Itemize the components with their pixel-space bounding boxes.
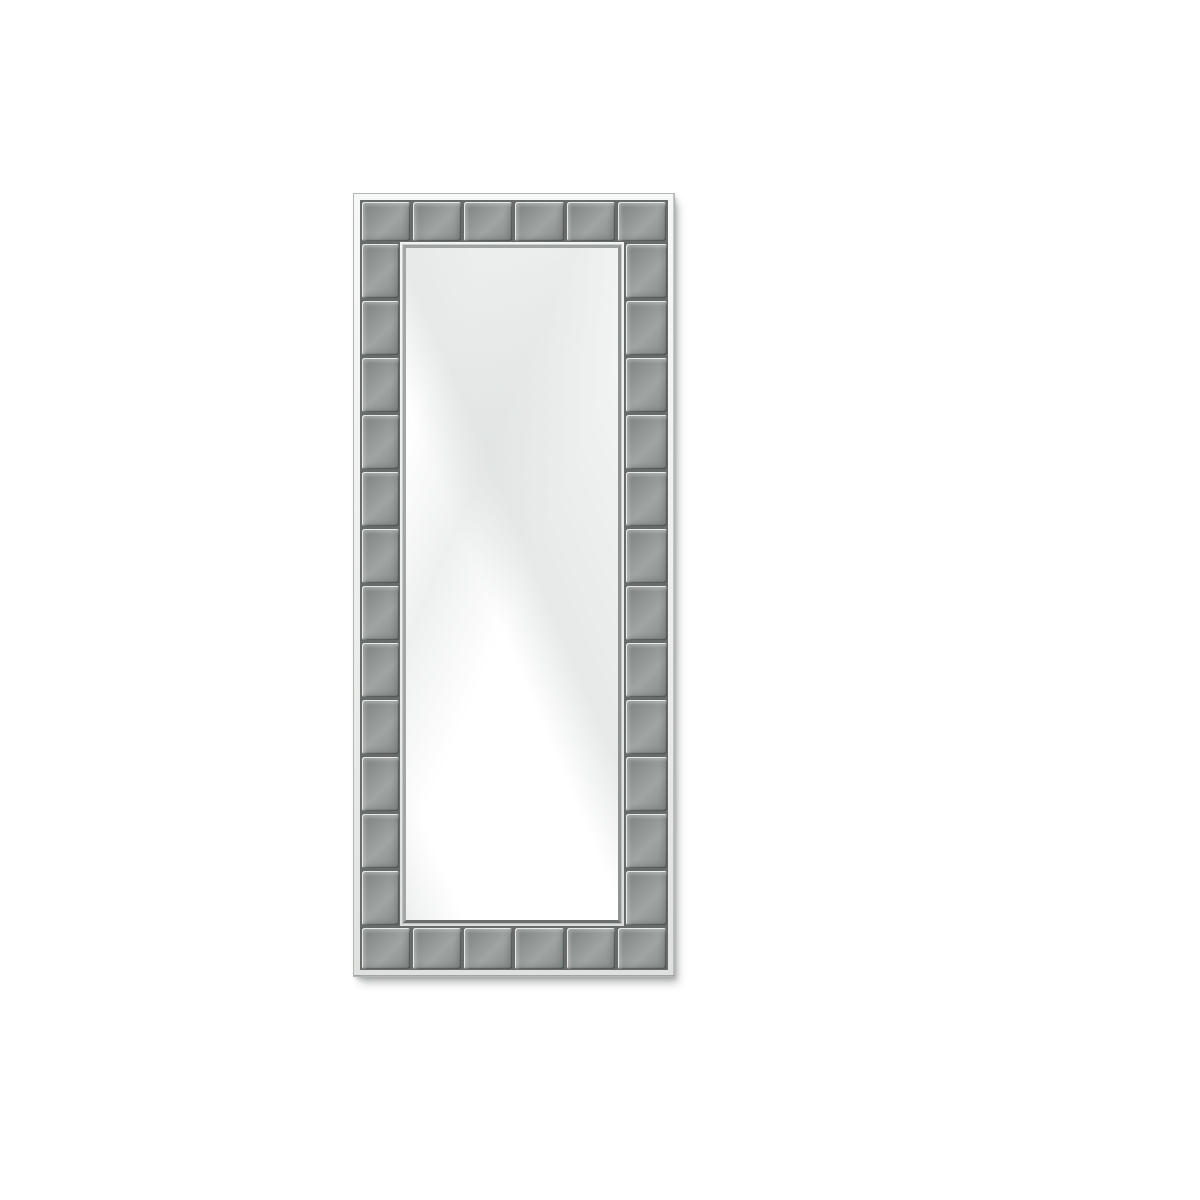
frame-tile [567, 202, 615, 241]
frame-tile [626, 643, 667, 697]
frame-tile [626, 301, 667, 355]
frame-tile [362, 472, 399, 526]
frame-tile [362, 301, 399, 355]
frame-tile [362, 586, 399, 640]
frame-top-strip [360, 200, 668, 242]
frame-bottom-strip [360, 926, 668, 970]
frame-tile [626, 757, 667, 811]
mirror-glass-bevel [403, 245, 621, 923]
frame-tile [567, 928, 615, 969]
frame-tile [362, 814, 399, 868]
mirror-glass [406, 248, 618, 920]
frame-tile [362, 700, 399, 754]
frame-tile [362, 757, 399, 811]
wall-mirror [353, 193, 675, 977]
frame-tile [362, 415, 399, 469]
frame-tile [413, 202, 461, 241]
frame-tile [362, 643, 399, 697]
frame-left-strip [360, 242, 400, 926]
frame-tile [515, 202, 563, 241]
frame-tile [362, 202, 410, 241]
frame-tile [362, 871, 399, 925]
frame-tile [626, 871, 667, 925]
frame-tile [515, 928, 563, 969]
frame-tile [626, 814, 667, 868]
frame-tile [464, 202, 512, 241]
frame-tile [626, 586, 667, 640]
glass-reflection [406, 248, 618, 920]
frame-tile [362, 244, 399, 298]
frame-tile [362, 529, 399, 583]
product-photo-canvas [0, 0, 1200, 1200]
frame-tile [626, 358, 667, 412]
frame-tile [362, 358, 399, 412]
mirror-tile-frame [360, 200, 668, 970]
frame-tile [464, 928, 512, 969]
frame-tile [618, 202, 666, 241]
frame-right-strip [624, 242, 668, 926]
frame-tile [626, 472, 667, 526]
frame-tile [618, 928, 666, 969]
frame-tile [413, 928, 461, 969]
frame-tile [626, 700, 667, 754]
frame-tile [626, 529, 667, 583]
frame-tile [362, 928, 410, 969]
mirror-inner-trim [400, 242, 624, 926]
frame-tile [626, 415, 667, 469]
frame-tile [626, 244, 667, 298]
